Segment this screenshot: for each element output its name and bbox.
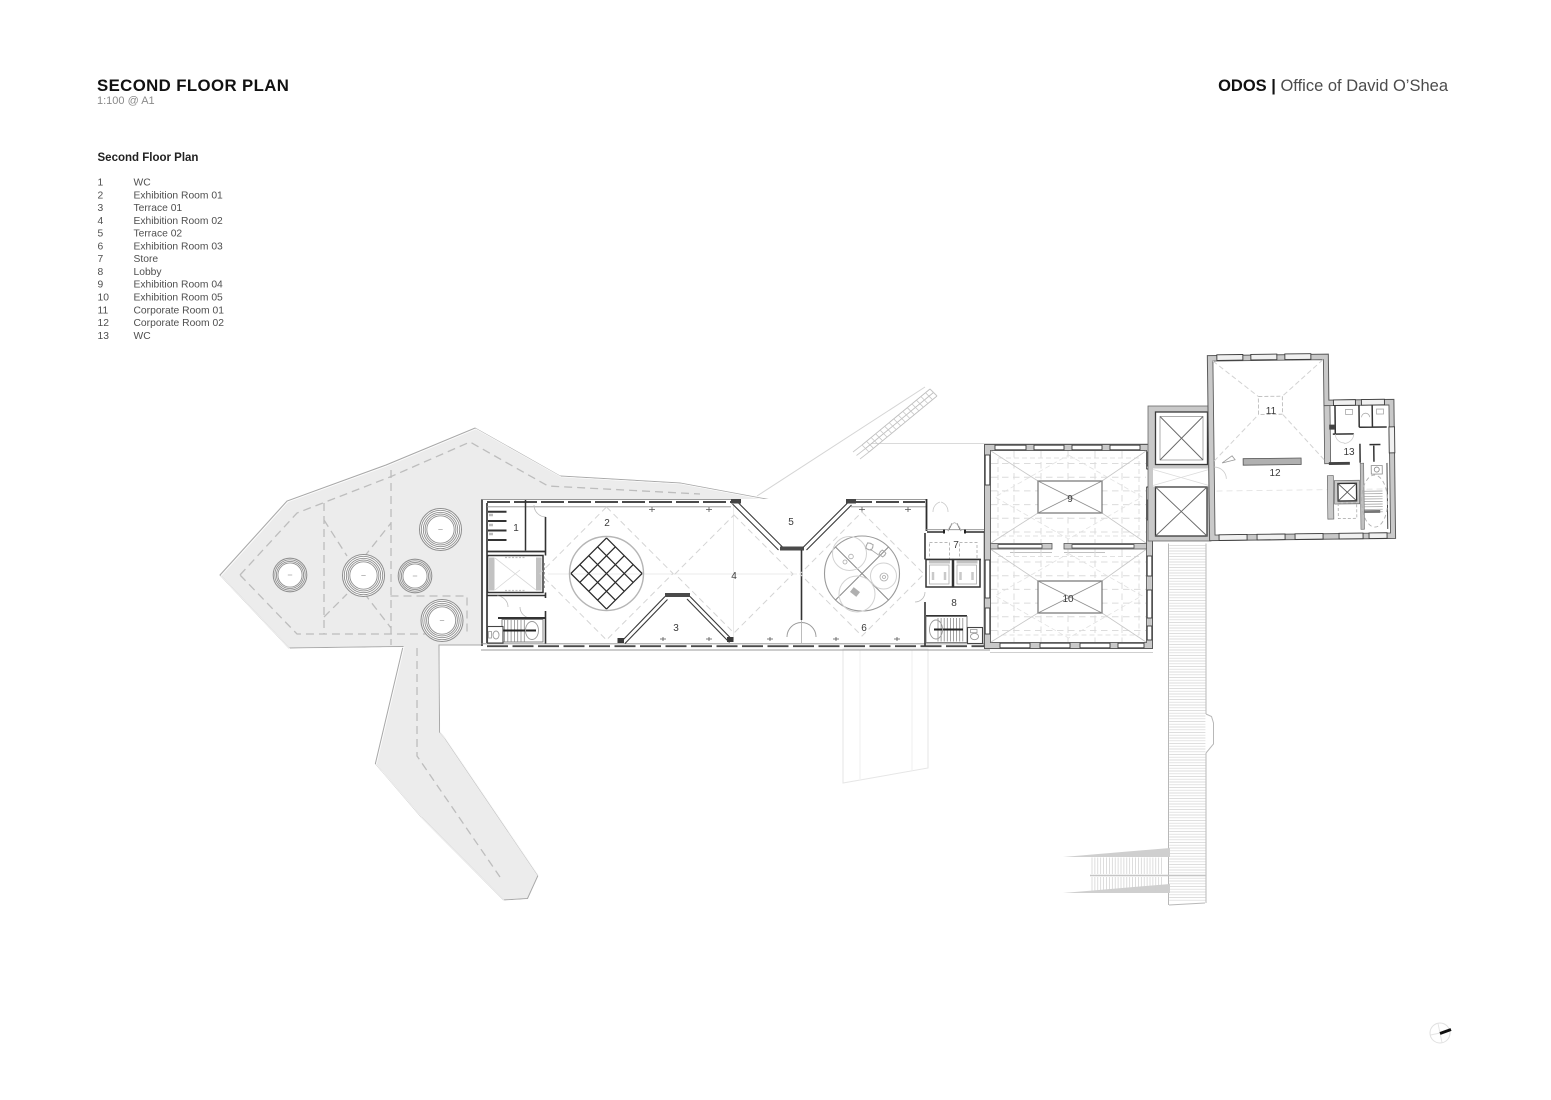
svg-text:8: 8 <box>951 598 957 609</box>
svg-text:3: 3 <box>98 203 104 214</box>
svg-text:6: 6 <box>861 623 867 634</box>
svg-text:7: 7 <box>98 254 104 265</box>
svg-text:12: 12 <box>1269 468 1281 479</box>
svg-text:5: 5 <box>98 229 104 240</box>
svg-text:11: 11 <box>1266 406 1277 417</box>
svg-text:2: 2 <box>98 190 104 201</box>
svg-text:12: 12 <box>98 318 110 329</box>
svg-text:1:100 @ A1: 1:100 @ A1 <box>97 95 155 107</box>
svg-text:Store: Store <box>134 254 159 265</box>
svg-text:9: 9 <box>98 280 104 291</box>
svg-text:1: 1 <box>513 523 519 534</box>
svg-text:Exhibition Room 01: Exhibition Room 01 <box>134 190 224 201</box>
svg-text:2: 2 <box>604 518 610 529</box>
svg-text:SECOND FLOOR PLAN: SECOND FLOOR PLAN <box>97 76 289 95</box>
svg-text:7: 7 <box>953 540 959 551</box>
svg-text:Lobby: Lobby <box>134 267 163 278</box>
svg-text:Terrace 02: Terrace 02 <box>134 229 183 240</box>
svg-text:ODOS | Office of David O’Shea: ODOS | Office of David O’Shea <box>1218 77 1449 95</box>
svg-text:Exhibition Room 04: Exhibition Room 04 <box>134 280 224 291</box>
svg-text:8: 8 <box>98 267 104 278</box>
svg-text:Corporate Room 01: Corporate Room 01 <box>134 305 225 316</box>
svg-text:Second Floor Plan: Second Floor Plan <box>98 152 199 164</box>
svg-text:11: 11 <box>98 305 109 316</box>
svg-text:Corporate Room 02: Corporate Room 02 <box>134 318 225 329</box>
svg-text:13: 13 <box>1343 447 1355 458</box>
svg-text:3: 3 <box>673 623 679 634</box>
svg-text:4: 4 <box>98 216 104 227</box>
svg-text:6: 6 <box>98 241 104 252</box>
svg-text:1: 1 <box>98 178 104 189</box>
svg-text:Exhibition Room 03: Exhibition Room 03 <box>134 241 224 252</box>
svg-text:5: 5 <box>788 517 794 528</box>
svg-text:Exhibition Room 02: Exhibition Room 02 <box>134 216 224 227</box>
svg-text:Exhibition Room 05: Exhibition Room 05 <box>134 293 224 304</box>
svg-text:10: 10 <box>98 293 110 304</box>
svg-text:Terrace 01: Terrace 01 <box>134 203 183 214</box>
svg-text:10: 10 <box>1062 594 1074 605</box>
svg-text:9: 9 <box>1067 494 1073 505</box>
svg-text:WC: WC <box>134 178 152 189</box>
svg-text:4: 4 <box>731 571 737 582</box>
svg-text:WC: WC <box>134 331 152 342</box>
svg-text:13: 13 <box>98 331 110 342</box>
